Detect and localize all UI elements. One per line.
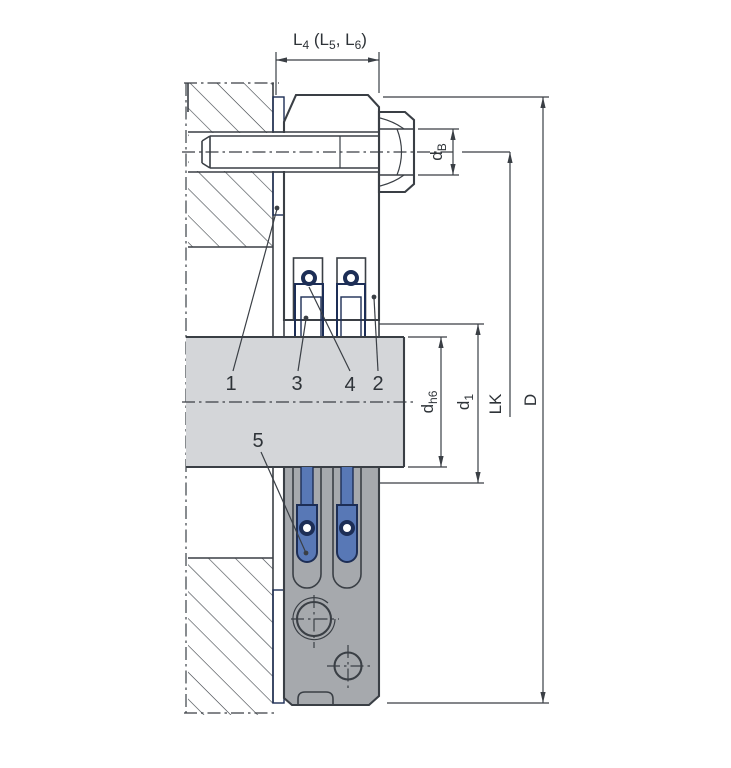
section-drawing: 1 3 4 2 5 L4 (L5, L6) dB dh6 d1 LK — [0, 0, 731, 768]
dim-lk-label: LK — [486, 393, 505, 414]
upper-pin-eye-left — [303, 272, 315, 284]
lower-pin-eye-left — [301, 522, 313, 534]
callout-3: 3 — [291, 373, 302, 395]
dim-db-label: dB — [427, 143, 449, 160]
callout-2: 2 — [372, 373, 383, 395]
dim-l4-label: L4 (L5, L6) — [293, 30, 367, 52]
callout-4: 4 — [344, 374, 355, 396]
shaft — [182, 337, 414, 467]
callout-1: 1 — [225, 373, 236, 395]
upper-pin-eye-right — [345, 272, 357, 284]
technical-drawing-page: 1 3 4 2 5 L4 (L5, L6) dB dh6 d1 LK — [0, 0, 731, 768]
dim-d-label: D — [521, 394, 540, 406]
lower-pin-eye-right — [341, 522, 353, 534]
dimension-l4: L4 (L5, L6) — [276, 30, 379, 95]
dim-d1-label: d1 — [454, 394, 476, 410]
dimension-lk: LK — [462, 152, 513, 417]
callout-5: 5 — [252, 430, 263, 452]
hub-flange-lower — [284, 467, 379, 705]
dim-dh6-label: dh6 — [418, 390, 440, 413]
dimension-dh6: dh6 — [408, 337, 447, 467]
